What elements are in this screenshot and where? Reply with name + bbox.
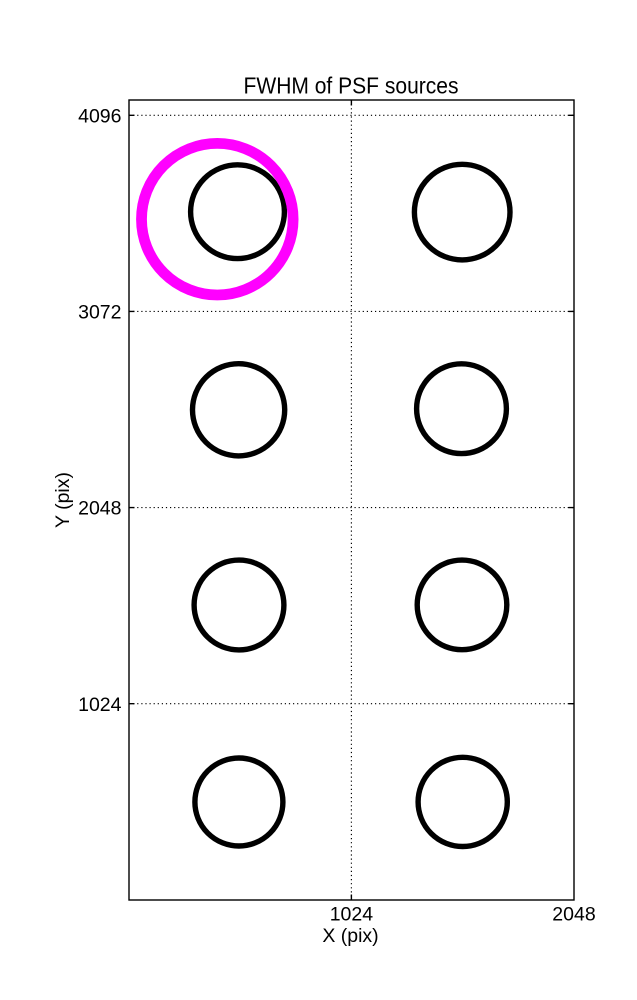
svg-text:2048: 2048	[78, 498, 121, 520]
svg-text:Y (pix): Y (pix)	[52, 472, 74, 528]
svg-text:X (pix): X (pix)	[322, 925, 378, 947]
svg-text:FWHM of PSF sources: FWHM of PSF sources	[244, 73, 459, 99]
svg-text:1024: 1024	[78, 694, 122, 716]
svg-text:1024: 1024	[330, 904, 374, 926]
svg-text:2048: 2048	[552, 904, 595, 926]
svg-text:3072: 3072	[78, 302, 121, 324]
svg-text:4096: 4096	[78, 105, 121, 127]
